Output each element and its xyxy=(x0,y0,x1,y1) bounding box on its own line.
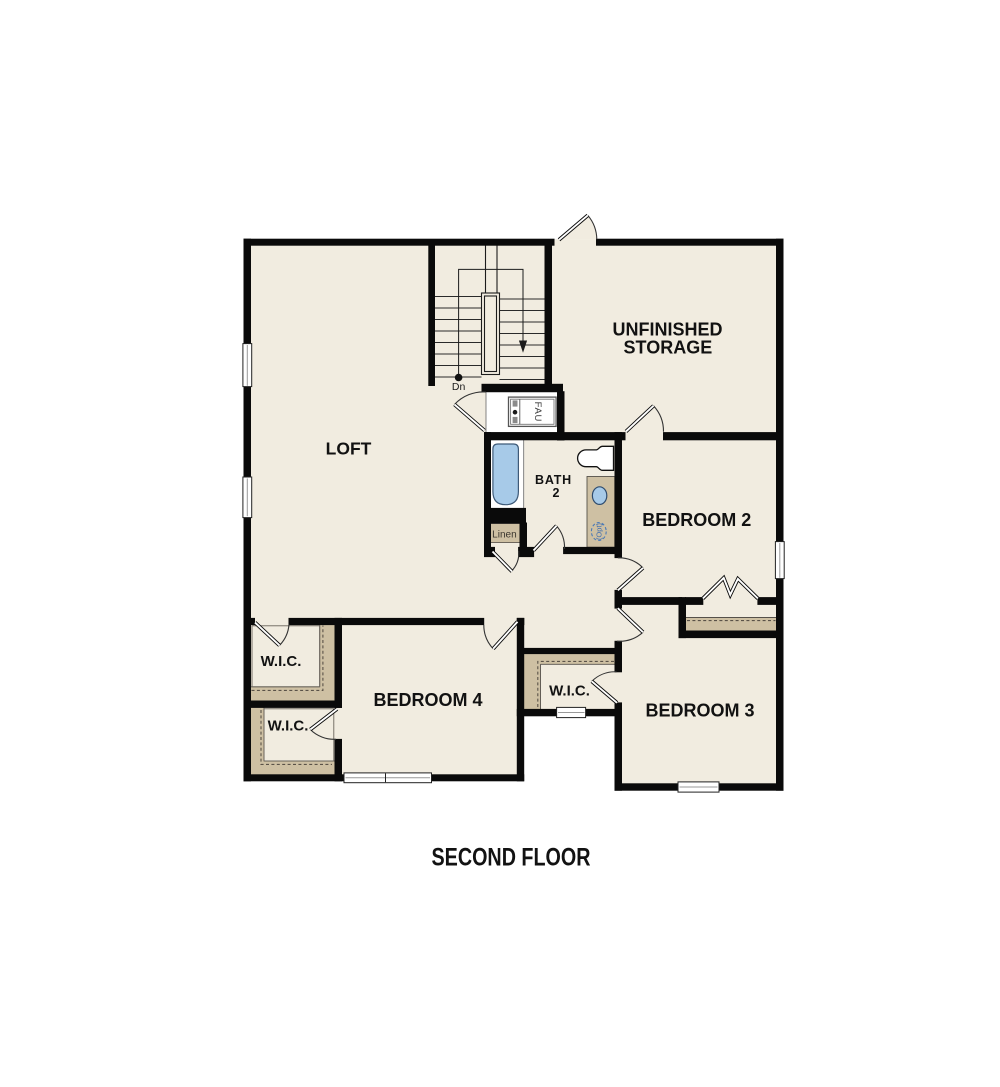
svg-text:BEDROOM 3: BEDROOM 3 xyxy=(645,701,754,721)
svg-text:UNFINISHED: UNFINISHED xyxy=(612,319,722,339)
svg-text:SECOND FLOOR: SECOND FLOOR xyxy=(431,843,590,871)
svg-text:2: 2 xyxy=(553,486,560,500)
svg-text:BATH: BATH xyxy=(535,473,572,487)
svg-text:Linen: Linen xyxy=(492,530,516,541)
svg-text:W.I.C.: W.I.C. xyxy=(549,683,590,700)
svg-text:W.I.C.: W.I.C. xyxy=(261,653,302,670)
svg-text:FAU: FAU xyxy=(532,402,543,422)
svg-text:(Opt): (Opt) xyxy=(595,522,604,540)
svg-text:W.I.C.: W.I.C. xyxy=(268,717,309,734)
svg-text:BEDROOM 2: BEDROOM 2 xyxy=(642,510,751,530)
svg-text:BEDROOM 4: BEDROOM 4 xyxy=(373,690,482,710)
svg-text:STORAGE: STORAGE xyxy=(624,338,713,358)
svg-text:Dn: Dn xyxy=(452,381,466,393)
svg-text:LOFT: LOFT xyxy=(326,439,372,459)
